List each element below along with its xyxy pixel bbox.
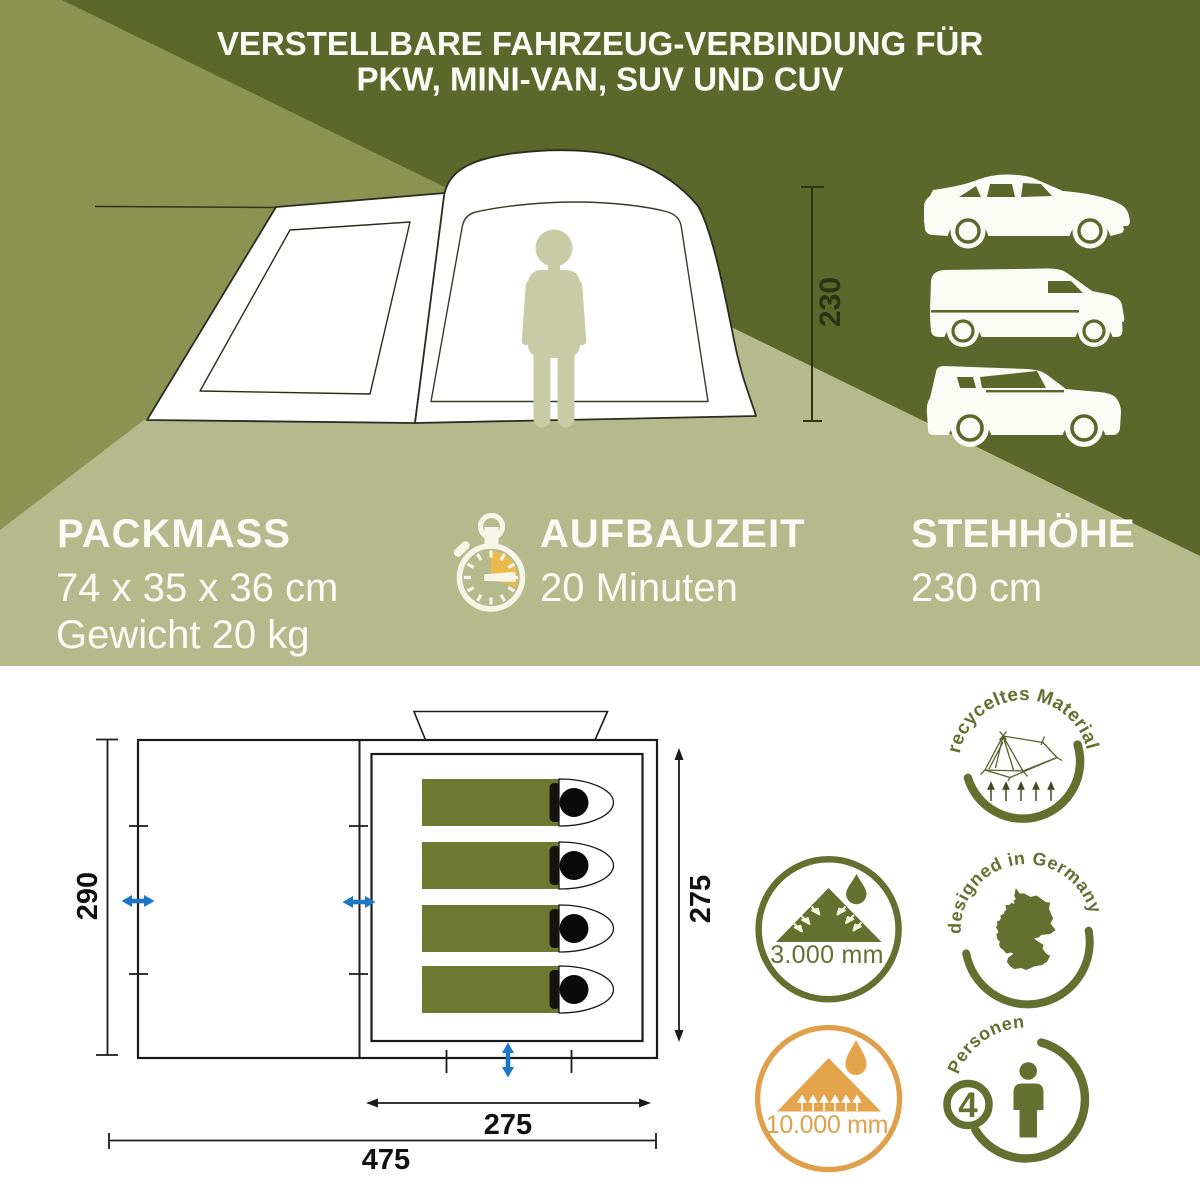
svg-text:230: 230 [814,277,847,327]
svg-text:475: 475 [362,1144,410,1176]
svg-text:AUFBAUZEIT: AUFBAUZEIT [540,512,806,556]
svg-text:20 Minuten: 20 Minuten [540,566,738,610]
svg-text:VERSTELLBARE FAHRZEUG-VERBINDU: VERSTELLBARE FAHRZEUG-VERBINDUNG FÜR [217,25,984,62]
svg-text:290: 290 [72,872,104,920]
svg-text:275: 275 [685,875,717,923]
svg-text:3.000 mm: 3.000 mm [770,941,884,969]
svg-text:10.000 mm: 10.000 mm [766,1111,888,1139]
svg-text:STEHHÖHE: STEHHÖHE [911,511,1135,556]
svg-text:275: 275 [484,1109,532,1141]
svg-text:4: 4 [958,1086,978,1125]
svg-text:PKW, MINI-VAN, SUV UND CUV: PKW, MINI-VAN, SUV UND CUV [356,61,843,98]
svg-text:74 x 35 x 36 cm: 74 x 35 x 36 cm [56,566,338,610]
svg-text:230 cm: 230 cm [911,566,1042,610]
svg-text:Gewicht 20 kg: Gewicht 20 kg [56,613,309,657]
svg-text:PACKMASS: PACKMASS [57,512,291,556]
